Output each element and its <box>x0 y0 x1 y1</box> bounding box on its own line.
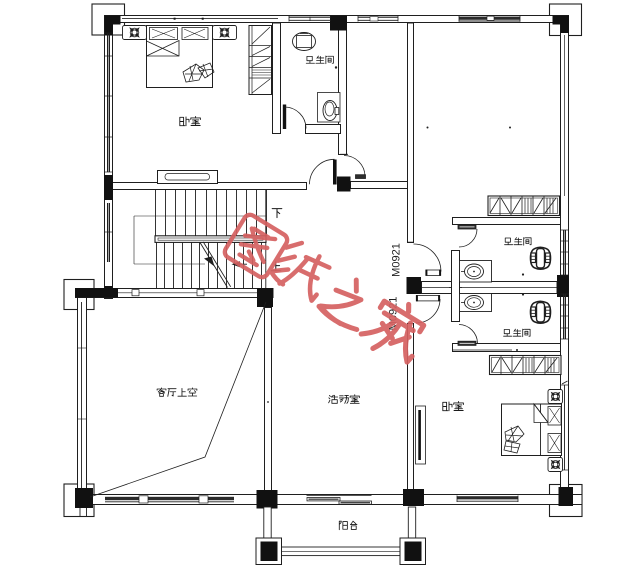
svg-text:M0921: M0921 <box>391 243 403 277</box>
